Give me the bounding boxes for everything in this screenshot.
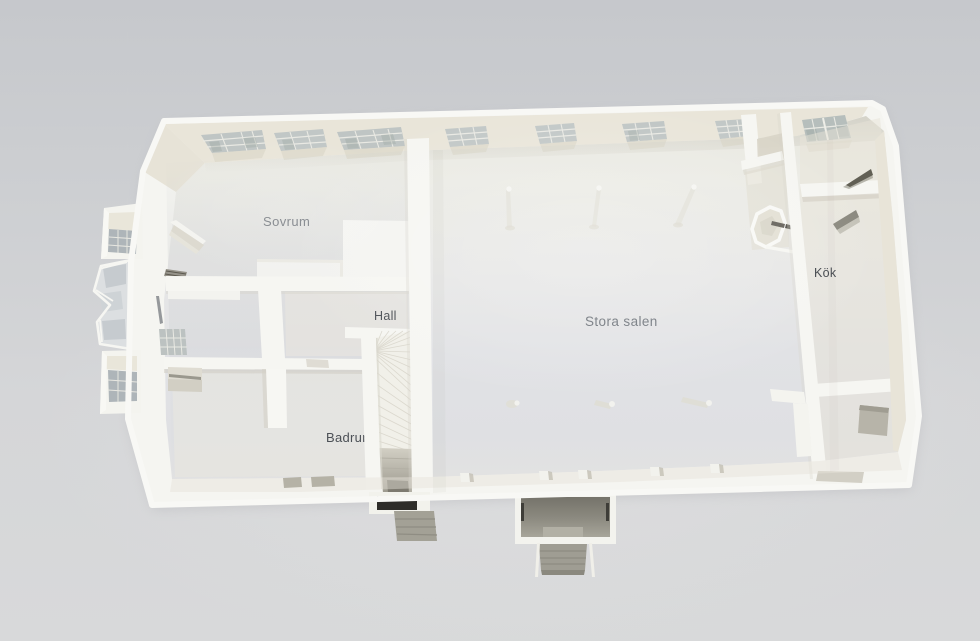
svg-text:Sovrum: Sovrum (263, 214, 310, 229)
svg-text:Stora salen: Stora salen (585, 314, 658, 329)
svg-text:Kök: Kök (814, 266, 837, 280)
svg-text:Hall: Hall (374, 309, 397, 323)
